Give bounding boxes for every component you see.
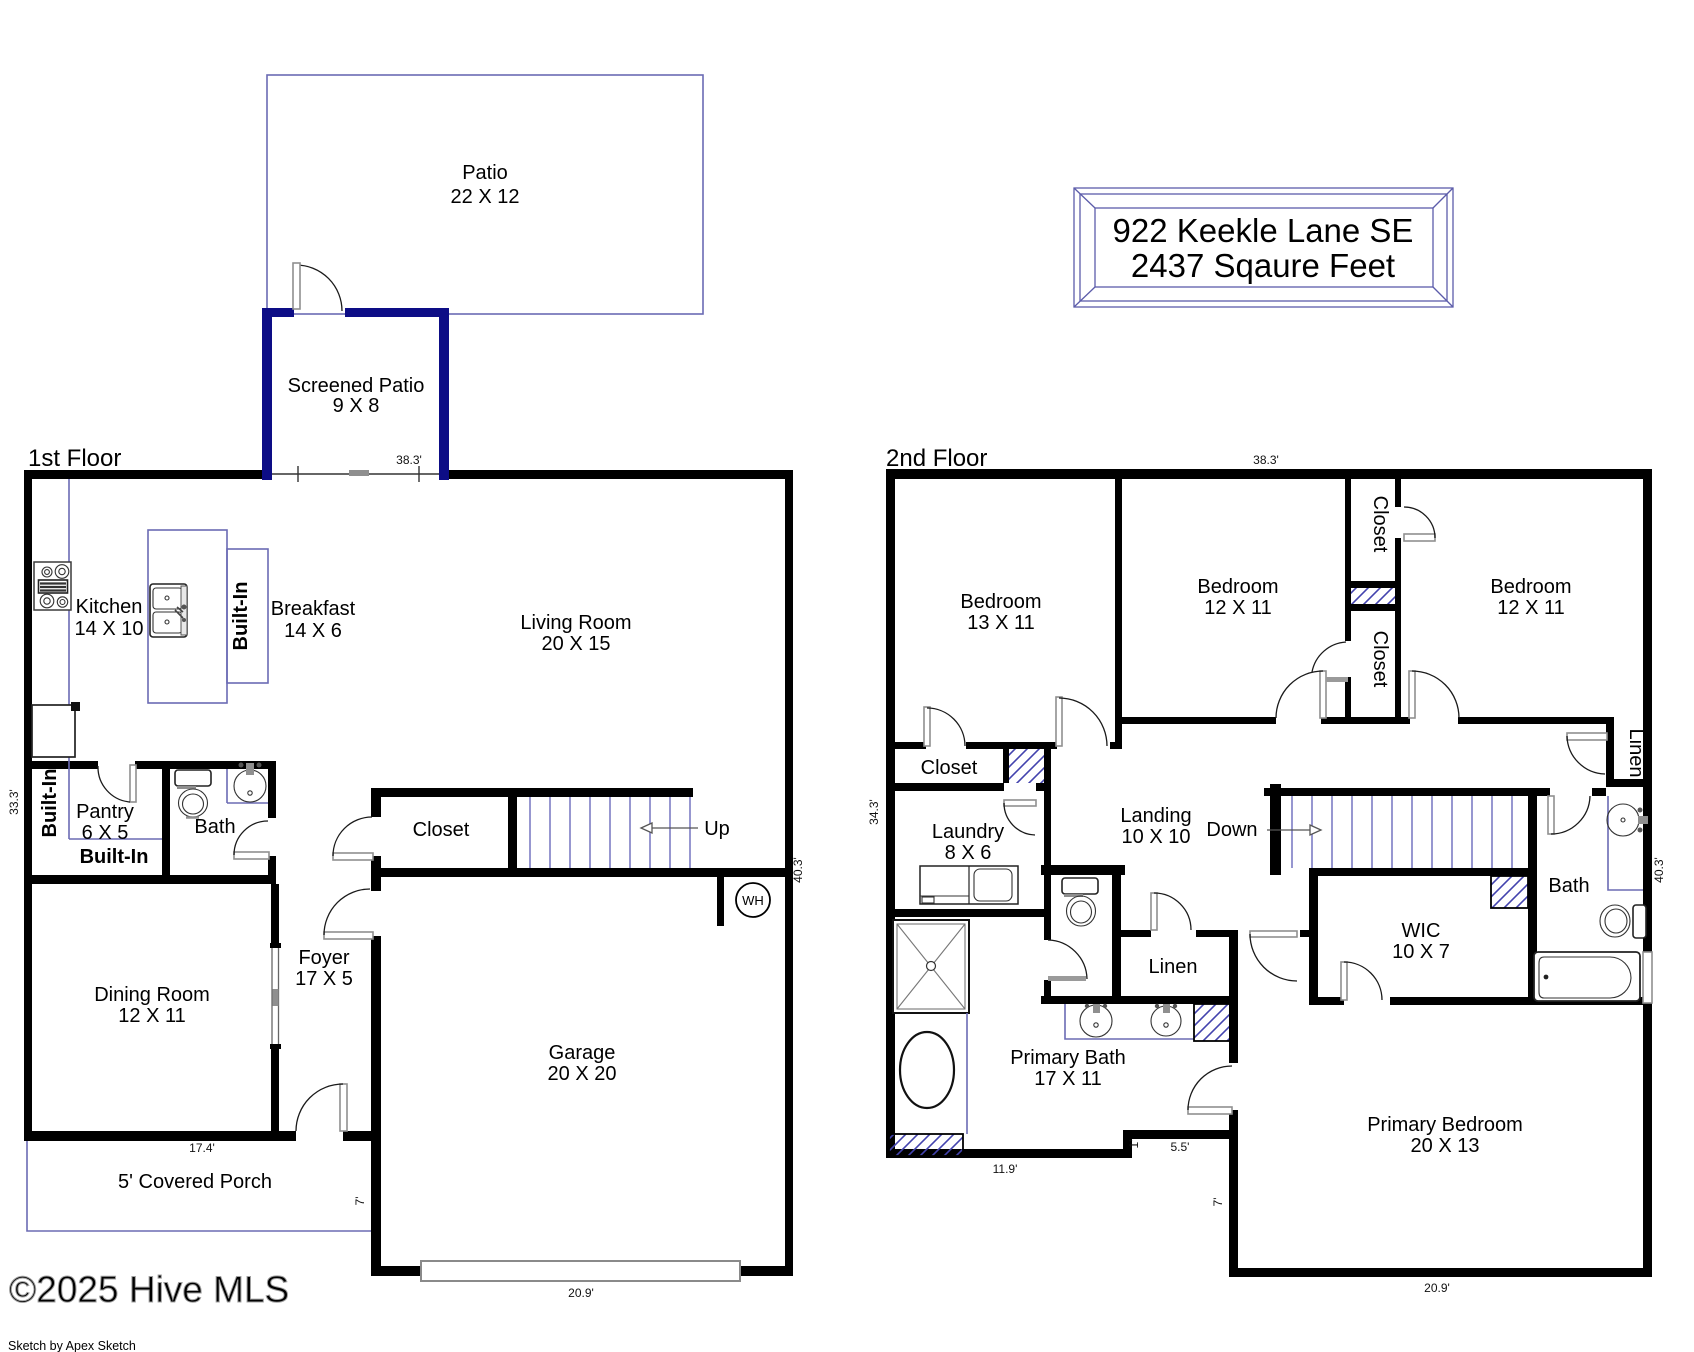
svg-text:Bedroom: Bedroom: [960, 591, 1041, 613]
svg-text:11.9': 11.9': [993, 1162, 1018, 1176]
svg-text:WIC: WIC: [1402, 920, 1441, 942]
svg-text:©2025 Hive MLS: ©2025 Hive MLS: [9, 1269, 289, 1310]
svg-text:Kitchen: Kitchen: [76, 596, 143, 618]
svg-text:Bath: Bath: [1548, 875, 1589, 897]
svg-text:2437 Sqaure Feet: 2437 Sqaure Feet: [1131, 247, 1395, 284]
svg-text:7': 7': [353, 1197, 367, 1206]
svg-text:10 X 7: 10 X 7: [1392, 941, 1450, 963]
svg-text:12 X 11: 12 X 11: [1204, 597, 1271, 619]
svg-text:Linen: Linen: [1149, 956, 1198, 978]
svg-text:7': 7': [1211, 1198, 1225, 1207]
svg-text:Landing: Landing: [1120, 805, 1191, 827]
svg-text:Closet: Closet: [413, 819, 470, 841]
svg-text:Bedroom: Bedroom: [1490, 576, 1571, 598]
svg-text:Built-In: Built-In: [230, 582, 252, 651]
svg-text:Linen: Linen: [1625, 729, 1647, 778]
svg-text:34.3': 34.3': [867, 799, 881, 825]
svg-text:2nd Floor: 2nd Floor: [886, 445, 987, 472]
svg-text:Built-In: Built-In: [80, 846, 149, 868]
svg-text:5' Covered Porch: 5' Covered Porch: [118, 1171, 272, 1193]
svg-text:20 X 13: 20 X 13: [1411, 1135, 1480, 1157]
svg-text:Dining Room: Dining Room: [94, 984, 210, 1006]
svg-text:40.3': 40.3': [791, 857, 805, 883]
svg-text:Up: Up: [704, 818, 730, 840]
svg-text:14 X 6: 14 X 6: [284, 620, 342, 642]
svg-text:9 X 8: 9 X 8: [333, 395, 380, 417]
svg-text:17.4': 17.4': [189, 1141, 215, 1155]
svg-text:Breakfast: Breakfast: [271, 598, 356, 620]
svg-text:Built-In: Built-In: [39, 769, 61, 838]
svg-text:Closet: Closet: [921, 757, 978, 779]
svg-text:1': 1': [1127, 1140, 1141, 1149]
svg-text:Down: Down: [1206, 819, 1257, 841]
svg-text:20 X 20: 20 X 20: [548, 1063, 617, 1085]
svg-text:14 X 10: 14 X 10: [75, 618, 144, 640]
svg-text:12 X 11: 12 X 11: [118, 1005, 185, 1027]
svg-text:Closet: Closet: [1369, 496, 1391, 553]
svg-text:8 X 6: 8 X 6: [945, 842, 992, 864]
svg-text:Screened Patio: Screened Patio: [288, 375, 425, 397]
svg-text:20 X 15: 20 X 15: [542, 633, 611, 655]
svg-text:20.9': 20.9': [568, 1286, 594, 1300]
svg-text:1st Floor: 1st Floor: [28, 445, 121, 472]
svg-text:20.9': 20.9': [1424, 1281, 1450, 1295]
svg-text:Primary Bath: Primary Bath: [1010, 1047, 1126, 1069]
svg-text:Patio: Patio: [462, 162, 508, 184]
svg-text:17 X 5: 17 X 5: [295, 968, 353, 990]
svg-text:17 X 11: 17 X 11: [1034, 1068, 1101, 1090]
svg-text:13 X 11: 13 X 11: [967, 612, 1034, 634]
svg-text:33.3': 33.3': [7, 789, 21, 815]
svg-text:922 Keekle Lane SE: 922 Keekle Lane SE: [1113, 212, 1414, 249]
svg-text:10 X 10: 10 X 10: [1122, 826, 1191, 848]
svg-text:Bedroom: Bedroom: [1197, 576, 1278, 598]
svg-text:Bath: Bath: [194, 816, 235, 838]
svg-text:Foyer: Foyer: [298, 947, 349, 969]
svg-text:Closet: Closet: [1369, 631, 1391, 688]
svg-text:Primary Bedroom: Primary Bedroom: [1367, 1114, 1523, 1136]
svg-text:Living Room: Living Room: [520, 612, 631, 634]
svg-text:Pantry: Pantry: [76, 801, 134, 823]
svg-text:Garage: Garage: [549, 1042, 616, 1064]
svg-text:38.3': 38.3': [1253, 453, 1279, 467]
svg-text:38.3': 38.3': [396, 453, 422, 467]
svg-text:5.5': 5.5': [1171, 1140, 1190, 1154]
svg-text:Laundry: Laundry: [932, 821, 1004, 843]
svg-text:6 X 5: 6 X 5: [82, 822, 129, 844]
svg-text:WH: WH: [742, 893, 764, 908]
svg-text:Sketch by Apex Sketch: Sketch by Apex Sketch: [8, 1339, 136, 1352]
svg-text:40.3': 40.3': [1652, 857, 1666, 883]
svg-text:22 X 12: 22 X 12: [451, 186, 520, 208]
svg-text:12 X 11: 12 X 11: [1497, 597, 1564, 619]
